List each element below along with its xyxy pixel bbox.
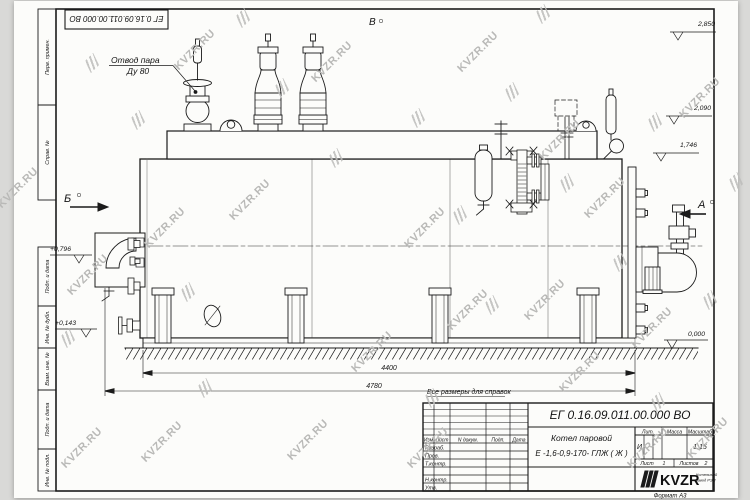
col-ndoc: N докум. <box>458 438 478 444</box>
row-utv: Утв. <box>424 486 437 492</box>
elevation-2090: 2,090 <box>666 105 712 124</box>
margin-label-inv-podl: Инв. № подл. <box>45 453 51 486</box>
svg-text:4400: 4400 <box>381 365 397 372</box>
format-label: Формат А3 <box>654 494 687 500</box>
skid-base <box>143 338 635 348</box>
boiler-drawing <box>95 34 702 360</box>
sheet-label: Лист <box>639 461 654 467</box>
hidden-dome <box>555 100 577 131</box>
col-podp: Подп. <box>491 438 504 444</box>
drawing-sheet: Перв. примен. Справ. № Подп. и дата Инв.… <box>0 0 750 500</box>
support-leg <box>152 288 174 343</box>
ground <box>125 348 698 360</box>
row-prov: Пров. <box>425 454 439 460</box>
drawing-canvas: Перв. примен. Справ. № Подп. и дата Инв.… <box>0 0 750 500</box>
steam-outlet-label: Отвод пара Ду 80 <box>109 55 197 93</box>
steam-outlet-label-line1: Отвод пара <box>111 55 160 65</box>
corner-stamp-doc-number: ЕГ 0.16.09.011.00.000 ВО <box>70 14 164 23</box>
svg-text:+0,796: +0,796 <box>50 246 71 253</box>
rear-flange-stub <box>636 189 648 197</box>
kvzr-logo-icon <box>641 471 658 487</box>
rear-flange-stub <box>636 209 648 217</box>
kvzr-logo-text: KVZR <box>660 473 700 489</box>
lifting-lug <box>576 121 596 131</box>
col-data: Дата <box>511 438 525 444</box>
kvzr-caption-line1: Котельный <box>696 472 718 477</box>
svg-text:В: В <box>369 17 376 28</box>
product-name-line1: Котел паровой <box>551 433 612 443</box>
support-leg <box>429 288 451 343</box>
kvzr-logo: KVZR Котельный завод РЭП <box>641 471 718 489</box>
margin-label-vzam-inv: Взам. инв. № <box>45 352 51 386</box>
row-nkontr: Н.контр. <box>425 478 448 484</box>
svg-text:А: А <box>697 199 705 211</box>
massa-header: Масса <box>667 430 682 436</box>
row-tkontr: Т.контр. <box>425 462 447 468</box>
masshtab-value: 1:15 <box>693 444 707 451</box>
sheet-value: 1 <box>663 461 666 467</box>
safety-valve-1 <box>254 34 282 131</box>
rear-flange-stub <box>636 326 648 334</box>
lit-value: И <box>637 444 643 451</box>
svg-text:1,746: 1,746 <box>680 142 697 149</box>
rear-flange-stub <box>636 304 648 312</box>
svg-text:Б: Б <box>64 193 71 205</box>
row-razrab: Разраб. <box>425 446 445 452</box>
lifting-lug <box>220 120 242 131</box>
support-leg <box>577 288 599 343</box>
title-block: ЕГ 0.16.09.011.00.000 ВО Изм Лист N доку… <box>423 403 718 500</box>
margin-label-perv-primen: Перв. примен. <box>45 39 51 75</box>
drain-valve <box>102 287 114 301</box>
corner-stamp: ЕГ 0.16.09.011.00.000 ВО <box>65 10 168 29</box>
blowdown-valve <box>119 317 141 334</box>
steam-outlet-label-line2: Ду 80 <box>126 66 149 76</box>
svg-text:+0,143: +0,143 <box>55 320 76 327</box>
burner-unit <box>636 205 697 294</box>
lit-header: Лит. <box>641 430 654 436</box>
col-izm: Изм <box>424 438 434 444</box>
reference-note: Все размеры для справок <box>427 388 512 397</box>
margin-label-podp-data-1: Подп. и дата <box>45 260 51 294</box>
view-marker-v: В <box>369 17 383 28</box>
elevation-0143: +0,143 <box>55 320 97 337</box>
sheets-label: Листов <box>679 461 699 467</box>
margin-label-inv-dubl: Инв. № дубл. <box>45 310 51 343</box>
support-leg <box>285 288 307 343</box>
kvzr-caption-line2: завод РЭП <box>695 478 716 483</box>
elevation-0000: 0,000 <box>664 331 708 349</box>
svg-text:2,850: 2,850 <box>697 21 715 28</box>
elevation-2850: 2,850 <box>670 21 716 40</box>
view-marker-b: Б <box>64 193 108 211</box>
masshtab-header: Масштаб <box>688 430 713 436</box>
col-list: Лист <box>435 438 449 444</box>
pressure-gauge <box>604 89 624 159</box>
svg-text:4780: 4780 <box>366 383 382 390</box>
svg-text:0,000: 0,000 <box>688 331 705 338</box>
safety-valve-2 <box>299 34 327 131</box>
margin-label-sprav: Справ. № <box>45 140 51 165</box>
svg-text:Все размеры для справок: Все размеры для справок <box>427 388 512 396</box>
elevation-1746: 1,746 <box>653 142 699 161</box>
svg-text:2,090: 2,090 <box>693 105 711 112</box>
title-doc-number: ЕГ 0.16.09.011.00.000 ВО <box>550 408 691 422</box>
steam-outlet-valve <box>184 39 212 131</box>
margin-label-podp-data-2: Подп. и дата <box>45 403 51 437</box>
sheets-value: 2 <box>704 461 708 467</box>
view-marker-a: А <box>680 199 714 218</box>
product-name-line2: Е -1,6-0,9-170- ГЛЖ ( Ж ) <box>535 449 628 458</box>
